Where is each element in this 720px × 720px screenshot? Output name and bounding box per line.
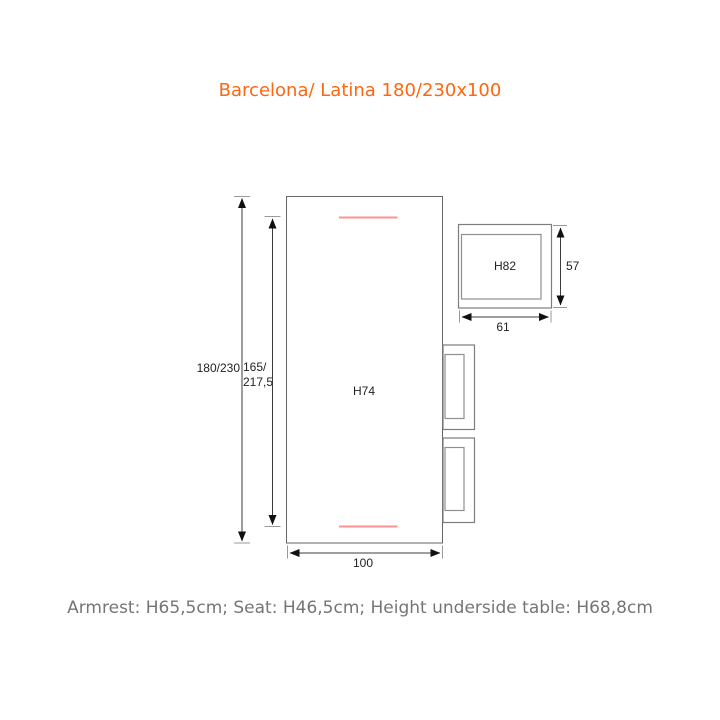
dim-label-total-length: 180/230 (197, 361, 240, 376)
side-chair-lower-seat-outline (445, 448, 464, 511)
dim-label-inner-length: 165/ 217,5 (243, 360, 273, 390)
height-notes: Armrest: H65,5cm; Seat: H46,5cm; Height … (0, 598, 720, 618)
dim-label-table-width: 100 (333, 556, 393, 571)
table-height-label: H74 (334, 384, 394, 399)
dim-label-chair-depth: 57 (566, 259, 579, 274)
dim-label-inner-length-line2: 217,5 (243, 375, 273, 390)
dim-label-inner-length-line1: 165/ (243, 360, 273, 375)
chair-height-label: H82 (475, 259, 535, 274)
furniture-dimension-diagram: Barcelona/ Latina 180/230x100 (0, 0, 720, 720)
side-chair-upper-seat-outline (445, 355, 464, 419)
table-top-outline (287, 197, 443, 544)
side-chair-lower-outline (443, 438, 475, 523)
dim-label-chair-width: 61 (473, 320, 533, 335)
side-chair-upper-outline (443, 345, 475, 430)
